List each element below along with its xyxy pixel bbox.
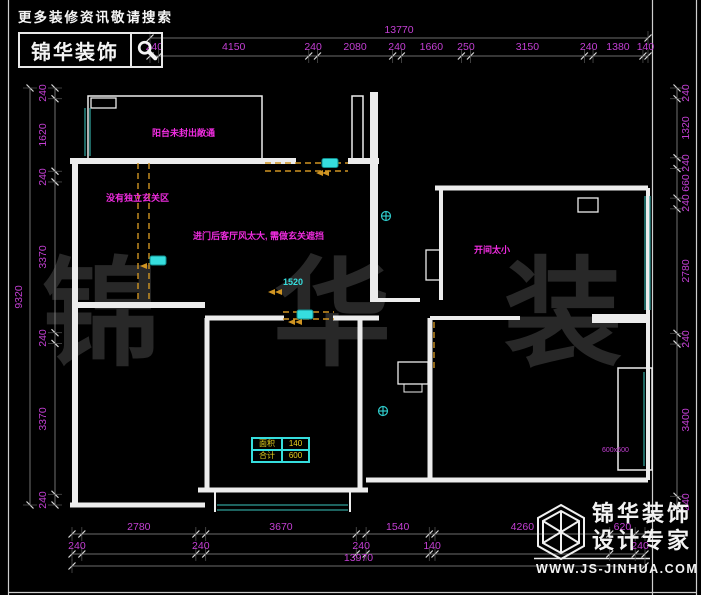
footer-brand-line1: 锦华装饰 bbox=[592, 500, 692, 527]
area-table-cell: 面积 bbox=[252, 438, 282, 450]
dim-label: 3670 bbox=[269, 522, 292, 533]
dim-label: 240 bbox=[681, 330, 692, 348]
dim-label: 13770 bbox=[384, 25, 413, 36]
dim-label: 140 bbox=[637, 42, 655, 53]
search-slogan: 更多装修资讯敬请搜索 bbox=[18, 6, 173, 26]
dim-label: 240 bbox=[38, 168, 49, 186]
cube-logo-icon bbox=[534, 503, 588, 561]
dim-label: 4260 bbox=[511, 522, 534, 533]
footer-brand-line2: 设计专家 bbox=[592, 527, 692, 554]
dim-label: 240 bbox=[388, 42, 406, 53]
dim-label: 3400 bbox=[681, 408, 692, 431]
search-icon bbox=[136, 39, 158, 61]
dim-label: 1620 bbox=[38, 123, 49, 146]
brand-logo-box: 锦华装饰 bbox=[18, 32, 132, 68]
balcony-note: 阳台未封出敞通 bbox=[152, 126, 215, 139]
dim-label: 240 bbox=[352, 541, 370, 552]
dim-label: 250 bbox=[457, 42, 475, 53]
header-search-logo: 更多装修资讯敬请搜索 锦华装饰 bbox=[18, 6, 173, 68]
area-table-cell: 600 bbox=[282, 450, 309, 462]
area-table-cell: 合计 bbox=[252, 450, 282, 462]
search-box bbox=[132, 32, 163, 68]
dim-label: 1660 bbox=[420, 42, 443, 53]
bay-window-tag: 600x600 bbox=[602, 447, 629, 454]
living-room-note: 进门后客厅风太大, 需做玄关遮挡 bbox=[193, 229, 324, 242]
dim-label: 1380 bbox=[606, 42, 629, 53]
entry-note: 没有独立玄关区 bbox=[106, 191, 169, 204]
dim-label: 240 bbox=[580, 42, 598, 53]
dim-label: 2080 bbox=[343, 42, 366, 53]
dim-label: 240 bbox=[192, 541, 210, 552]
dim-label: 2780 bbox=[681, 259, 692, 282]
dim-label: 3370 bbox=[38, 246, 49, 269]
dim-label: 13970 bbox=[344, 553, 373, 564]
dim-label: 1540 bbox=[386, 522, 409, 533]
door-width-tag: 1520 bbox=[283, 277, 303, 287]
dim-label: 240 bbox=[38, 85, 49, 103]
dim-label: 3150 bbox=[516, 42, 539, 53]
area-table-cell: 140 bbox=[282, 438, 309, 450]
dim-label: 240 bbox=[38, 329, 49, 347]
dim-label: 240 bbox=[681, 195, 692, 213]
bedroom-note: 开间太小 bbox=[474, 243, 510, 256]
dim-label: 240 bbox=[38, 491, 49, 509]
area-table: 面积 140 合计 600 bbox=[251, 437, 310, 463]
dim-label: 240 bbox=[68, 541, 86, 552]
cad-floorplan-screenshot: 锦 华 装 饰 bbox=[0, 0, 701, 595]
dim-label: 9320 bbox=[14, 285, 25, 308]
dim-label: 2780 bbox=[127, 522, 150, 533]
dim-label: 1320 bbox=[681, 117, 692, 140]
dim-label: 660 bbox=[681, 175, 692, 193]
dim-label: 140 bbox=[423, 541, 441, 552]
footer-url: WWW.JS-JINHUA.COM bbox=[536, 562, 698, 576]
dim-label: 4150 bbox=[222, 42, 245, 53]
dim-label: 3370 bbox=[38, 407, 49, 430]
dim-label: 240 bbox=[304, 42, 322, 53]
dim-label: 240 bbox=[681, 85, 692, 103]
dim-label: 240 bbox=[681, 154, 692, 172]
